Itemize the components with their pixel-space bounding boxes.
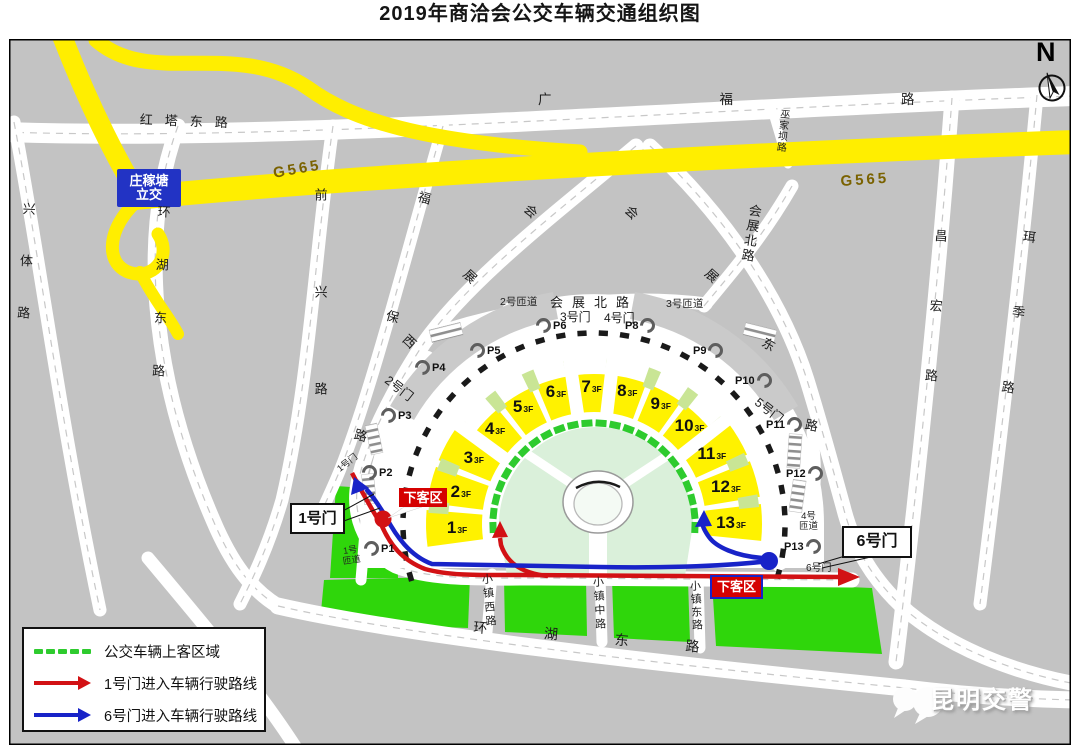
road-label-huizhanbei-h: 会展北路 bbox=[550, 296, 638, 310]
dropoff-left-sign: 下客区 bbox=[399, 488, 447, 507]
arena-center-ring bbox=[574, 483, 622, 525]
parking-p6: P6 bbox=[536, 318, 566, 333]
road-label-guangfu: 广福路 bbox=[538, 93, 1080, 107]
hall-10-label: 103F bbox=[675, 416, 705, 436]
ramp-icon bbox=[533, 315, 554, 336]
parking-p5: P5 bbox=[470, 343, 500, 358]
hall-9-label: 93F bbox=[651, 394, 671, 414]
parking-p1: P1 bbox=[364, 541, 394, 556]
interchange-sign: 庄稼塘 立交 bbox=[117, 169, 181, 207]
ramp-icon bbox=[705, 340, 726, 361]
ramp3-label: 3号匝道 bbox=[666, 299, 703, 311]
parking-p11: P11 bbox=[766, 417, 802, 432]
hall-11-label: 113F bbox=[697, 444, 726, 464]
hall-5-label: 53F bbox=[513, 397, 533, 417]
g565-label-right: G565 bbox=[840, 171, 890, 190]
road-label-xiaozhenzhong: 小镇中路 bbox=[591, 576, 605, 633]
ramp-icon bbox=[359, 462, 380, 483]
hall-8-label: 83F bbox=[617, 381, 637, 401]
parking-p3: P3 bbox=[381, 408, 411, 423]
hall-13-label: 133F bbox=[716, 513, 746, 533]
hall-2-label: 23F bbox=[451, 482, 471, 502]
gate1-stop-dot bbox=[375, 511, 392, 528]
road-label-hongtadong: 红塔东路 bbox=[140, 113, 240, 130]
legend-box: 公交车辆上客区域 1号门进入车辆行驶路线 6号门进入车辆行驶路线 bbox=[22, 627, 266, 732]
parking-p12: P12 bbox=[786, 466, 823, 481]
hall-1-label: 13F bbox=[447, 518, 467, 538]
dropoff-right-sign: 下客区 bbox=[710, 575, 763, 599]
ramp1-label: 1号 匝道 bbox=[341, 545, 362, 567]
parking-p2: P2 bbox=[362, 465, 392, 480]
parking-p9: P9 bbox=[693, 343, 723, 358]
hall-6-label: 63F bbox=[546, 382, 566, 402]
gate6-road-text: 6号门 bbox=[806, 561, 832, 574]
ramp-icon bbox=[378, 405, 399, 426]
parking-p4: P4 bbox=[415, 360, 445, 375]
boarding-dash-swatch bbox=[34, 649, 96, 654]
road-label-qianxing: 前兴路 bbox=[313, 188, 327, 479]
ramp-icon bbox=[467, 340, 488, 361]
hall-12-label: 123F bbox=[711, 477, 741, 497]
ramp2-label: 2号匝道 bbox=[500, 297, 537, 309]
hall-3-label: 33F bbox=[464, 448, 484, 468]
ramp-icon bbox=[412, 357, 433, 378]
gate6-stop-dot bbox=[760, 552, 778, 570]
ramp-icon bbox=[804, 463, 825, 484]
ramp-icon bbox=[361, 538, 382, 559]
hall-7-label: 73F bbox=[581, 377, 601, 397]
parking-p8: P8 bbox=[625, 318, 655, 333]
ramp-icon bbox=[784, 414, 805, 435]
legend-row-boarding: 公交车辆上客区域 bbox=[34, 641, 220, 661]
road-label-xiaozhendong: 小镇东路 bbox=[688, 580, 702, 633]
ramp-icon bbox=[802, 536, 823, 557]
blue-arrow-swatch bbox=[34, 708, 96, 722]
traffic-map-page: 2019年商洽会公交车辆交通组织图 bbox=[0, 0, 1080, 751]
ramp4-label: 4号 匝道 bbox=[799, 512, 818, 533]
legend-row-route6: 6号门进入车辆行驶路线 bbox=[34, 705, 257, 725]
ramp-icon bbox=[753, 370, 774, 391]
red-arrow-swatch bbox=[34, 676, 96, 690]
parking-p13: P13 bbox=[784, 539, 821, 554]
watermark-kunming-police: 昆明交警 bbox=[930, 688, 1034, 713]
north-letter: N bbox=[1036, 38, 1056, 66]
legend-row-route1: 1号门进入车辆行驶路线 bbox=[34, 673, 257, 693]
parking-p10: P10 bbox=[735, 373, 772, 388]
ramp-icon bbox=[637, 315, 658, 336]
gate1-sign: 1号门 bbox=[290, 503, 345, 534]
hall-4-label: 43F bbox=[485, 419, 505, 439]
gate6-sign: 6号门 bbox=[842, 526, 912, 558]
road-char-huizhandong-4: 路 bbox=[804, 418, 820, 434]
